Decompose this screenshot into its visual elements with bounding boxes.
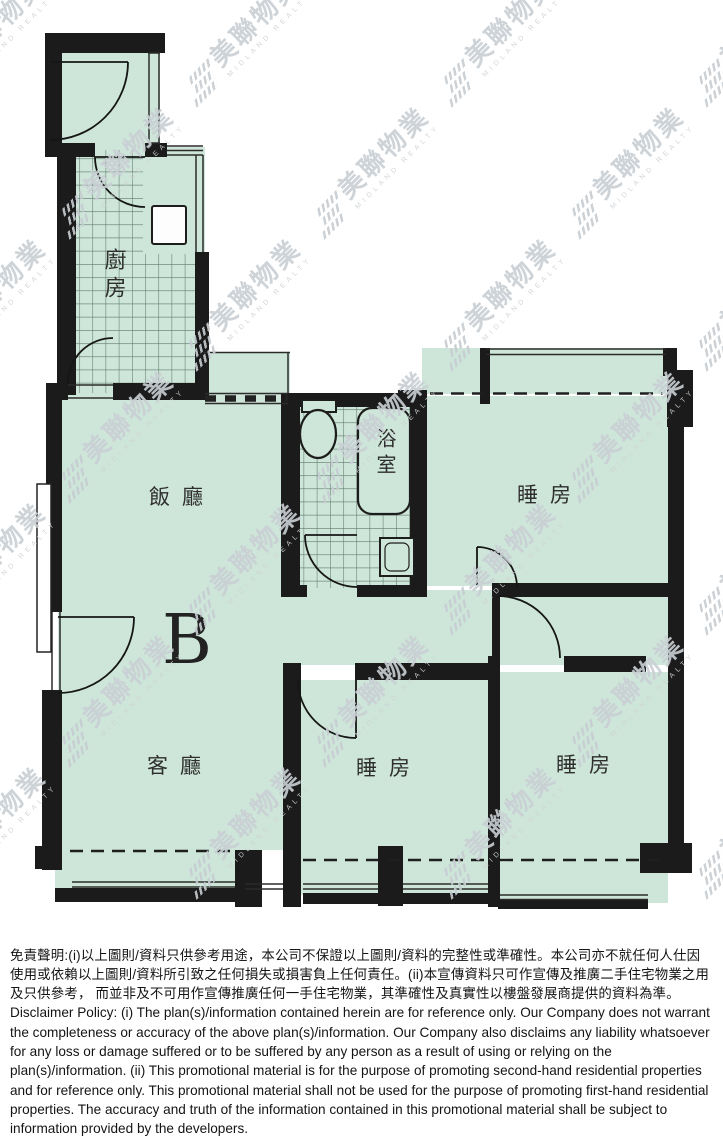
hallway [300,590,668,665]
bedroom-right-door-leaf [492,596,500,656]
disclaimer: 免責聲明:(i)以上圖則/資料只供參考用途，本公司不保證以上圖則/資料的完整性或… [0,944,723,1139]
room-entry-porch [60,48,160,148]
pipe-duct [37,484,51,652]
disclaimer-chinese: 免責聲明:(i)以上圖則/資料只供參考用途，本公司不保證以上圖則/資料的完整性或… [10,946,713,1003]
lobby-strip [203,352,290,395]
disclaimer-english: Disclaimer Policy: (i) The plan(s)/infor… [10,1003,713,1138]
floor-plan: 廚房 浴室 飯廳 睡房 客廳 睡房 睡房 B [0,0,723,940]
ac-platform [422,348,482,394]
toilet-bowl [300,410,336,458]
bedroom-right-label: 睡房 [556,753,622,777]
floor-plan-drawing: 廚房 浴室 飯廳 睡房 客廳 睡房 睡房 B [0,0,723,940]
kitchen-appliance [152,206,186,244]
bathroom-label: 浴室 [373,428,397,480]
bedroom-middle-label: 睡房 [356,756,422,780]
bedroom-top-label: 睡房 [517,483,583,507]
living-label: 客廳 [147,754,213,778]
unit-label: B [162,601,212,680]
dining-label: 飯廳 [149,485,215,509]
kitchen-label: 廚房 [101,248,127,304]
floorplan-page: { "plan": { "unit_label": "B", "rooms": … [0,0,723,1110]
